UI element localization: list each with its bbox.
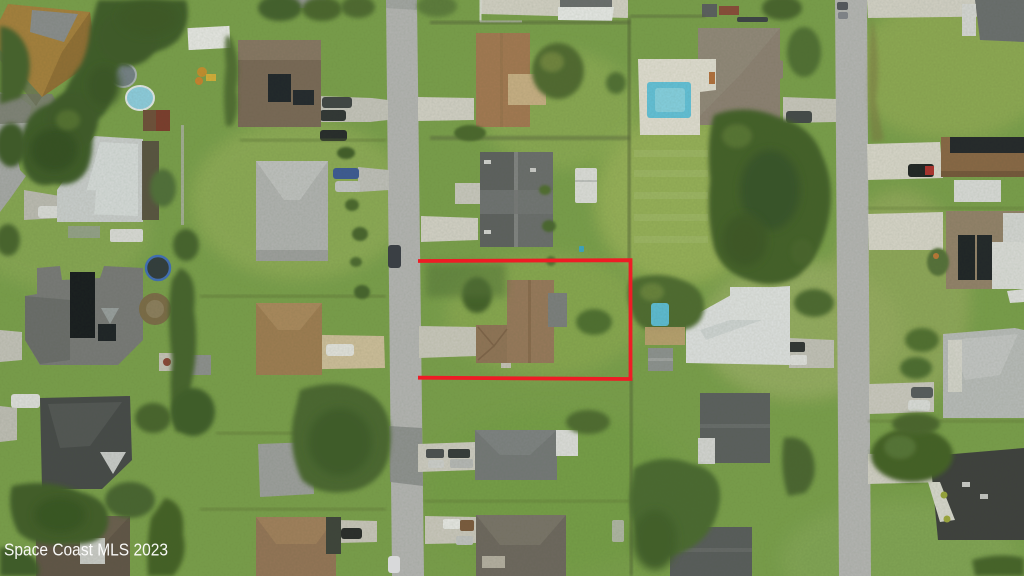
svg-text:Space Coast MLS 2023: Space Coast MLS 2023 xyxy=(4,540,168,560)
